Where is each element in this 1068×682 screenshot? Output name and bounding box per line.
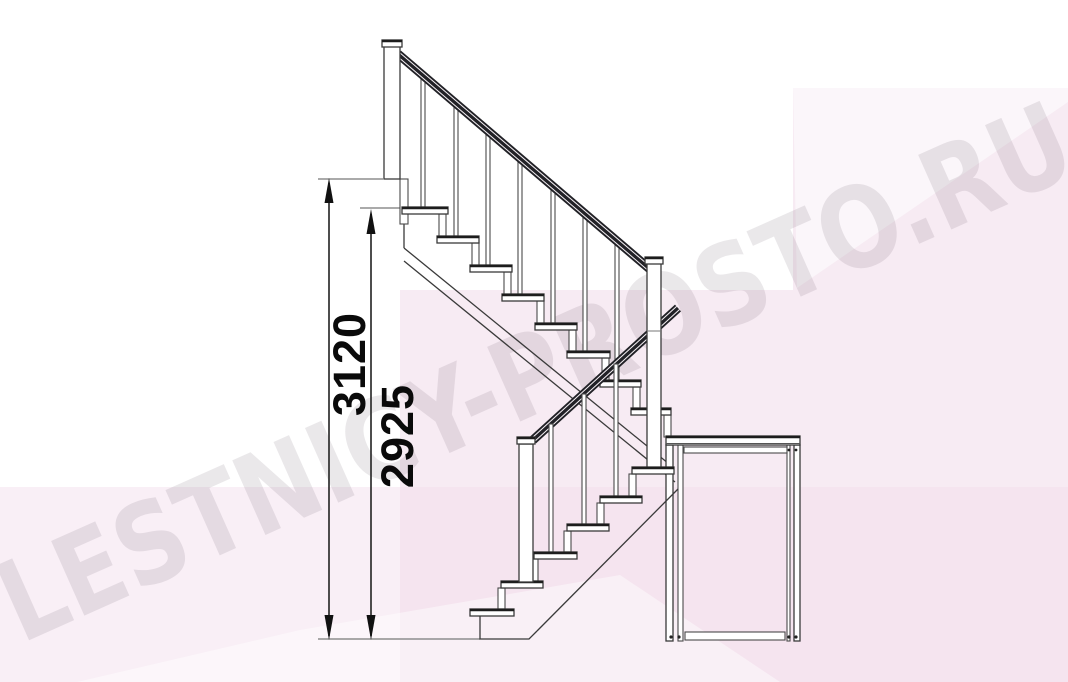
baluster: [614, 364, 618, 496]
baluster: [551, 186, 555, 323]
platform-leg-right-inner: [787, 445, 790, 641]
fastener-dot: [677, 635, 680, 638]
baluster: [582, 394, 586, 524]
baluster: [549, 424, 553, 552]
tread-support: [564, 531, 571, 552]
newel-post-middle: [645, 257, 663, 468]
post-body: [647, 263, 661, 468]
tread-support: [664, 415, 671, 437]
tread-support: [569, 330, 576, 352]
dimension-label-flight: 2925: [372, 384, 423, 488]
tread-support: [472, 243, 479, 266]
newel-post-bottom: [517, 437, 535, 582]
staircase-drawing-page: LESTNICY-PROSTO.RU 3120 2925: [0, 0, 1068, 682]
newel-post-top: [382, 40, 402, 179]
baluster: [454, 104, 458, 236]
staircase-technical-drawing: LESTNICY-PROSTO.RU 3120 2925: [0, 0, 1068, 682]
fastener-dot: [787, 635, 790, 638]
platform-leg-left-inner: [678, 445, 683, 641]
baluster: [583, 213, 587, 351]
tread-support: [504, 272, 511, 295]
fastener-dot: [669, 635, 672, 638]
tread-support: [537, 301, 544, 324]
fastener-dot: [795, 449, 798, 452]
platform-top-rail: [684, 447, 787, 453]
tread-support: [400, 179, 408, 224]
platform-leg-right: [794, 445, 800, 641]
tread-support: [498, 588, 505, 609]
tread-support: [633, 387, 640, 409]
fastener-dot: [788, 449, 791, 452]
tread-support: [439, 214, 446, 237]
post-body: [519, 444, 533, 582]
baluster: [421, 76, 425, 207]
fastener-dot: [794, 635, 797, 638]
dimension-label-total: 3120: [324, 312, 375, 416]
platform-bottom-rail: [685, 632, 785, 640]
baluster: [518, 158, 522, 294]
baluster: [486, 131, 490, 265]
tread-support: [597, 503, 604, 524]
tread-support: [629, 474, 636, 496]
post-body: [384, 46, 400, 179]
